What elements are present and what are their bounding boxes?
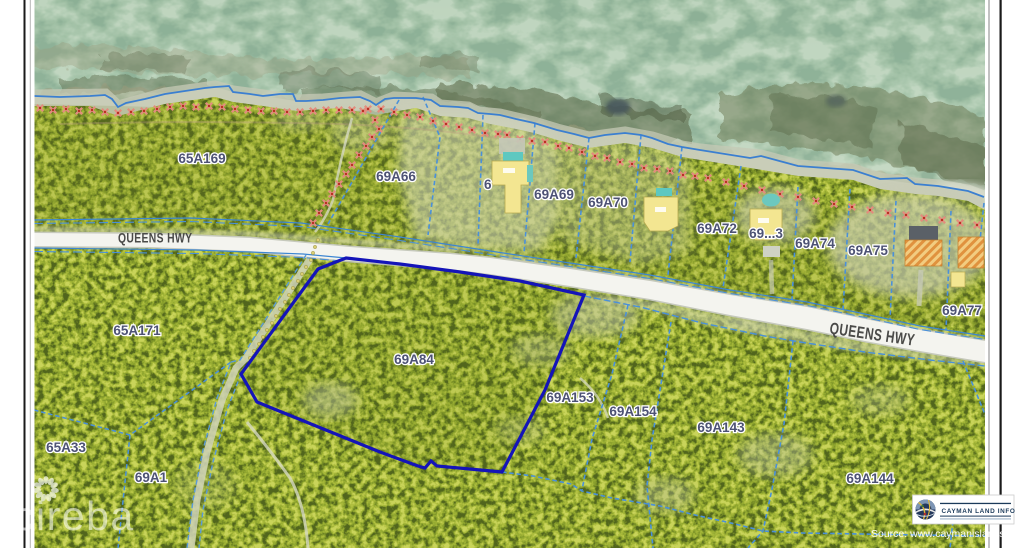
svg-text:cireba: cireba <box>14 493 135 539</box>
svg-text:69A70: 69A70 <box>588 195 628 210</box>
svg-text:69A75: 69A75 <box>848 243 888 258</box>
svg-text:QUEENS HWY: QUEENS HWY <box>118 230 192 246</box>
svg-text:69...3: 69...3 <box>749 226 783 241</box>
svg-text:69A84: 69A84 <box>394 352 434 367</box>
svg-text:69A153: 69A153 <box>546 390 594 405</box>
svg-text:69A144: 69A144 <box>846 471 894 486</box>
svg-text:65A169: 65A169 <box>178 151 225 166</box>
svg-text:CAYMAN LAND INFO: CAYMAN LAND INFO <box>942 508 1016 515</box>
svg-text:Source: www.caymanislandsland.: Source: www.caymanislandsland... <box>871 528 1024 540</box>
svg-text:65A171: 65A171 <box>113 323 161 338</box>
svg-text:69A154: 69A154 <box>609 404 657 419</box>
svg-text:69A74: 69A74 <box>795 236 835 251</box>
svg-text:69A69: 69A69 <box>534 187 574 202</box>
svg-text:69A77: 69A77 <box>942 303 982 318</box>
svg-text:69A72: 69A72 <box>697 221 737 236</box>
svg-text:69A1: 69A1 <box>135 470 168 485</box>
svg-text:6: 6 <box>484 177 492 192</box>
svg-text:69A143: 69A143 <box>697 420 745 435</box>
svg-text:69A66: 69A66 <box>376 169 416 184</box>
svg-text:65A33: 65A33 <box>46 440 86 455</box>
